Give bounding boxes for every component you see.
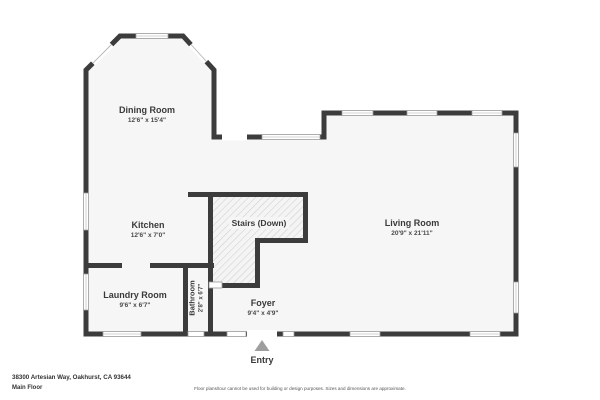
entry-label: Entry	[250, 355, 273, 365]
room-label-laundry: Laundry Room 9'6" x 6'7"	[103, 290, 167, 310]
kitchen-dims: 12'6" x 7'0"	[131, 232, 166, 240]
foyer-name: Foyer	[248, 298, 279, 309]
disclaimer-text: Floor plans/tour cannot be used for buil…	[194, 386, 406, 391]
living-room-dims: 20'9" x 21'11"	[385, 230, 440, 238]
room-label-kitchen: Kitchen 12'6" x 7'0"	[131, 220, 166, 240]
room-label-foyer: Foyer 9'4" x 4'9"	[248, 298, 279, 318]
floor-plan-page: Dining Room 12'6" x 15'4" Kitchen 12'6" …	[0, 0, 600, 400]
living-room-name: Living Room	[385, 218, 440, 229]
foyer-dims: 9'4" x 4'9"	[248, 310, 279, 318]
entry-arrow-icon	[255, 340, 270, 351]
room-label-bathroom: Bathroom 2'8" x 6'7"	[189, 280, 206, 315]
kitchen-name: Kitchen	[131, 220, 166, 231]
room-label-living: Living Room 20'9" x 21'11"	[385, 218, 440, 238]
address-text: 38300 Artesian Way, Oakhurst, CA 93644	[12, 374, 131, 381]
dining-room-dims: 12'6" x 15'4"	[119, 117, 175, 125]
bathroom-dims: 2'8" x 6'7"	[198, 280, 205, 315]
floor-name-text: Main Floor	[12, 385, 42, 391]
laundry-room-dims: 9'6" x 6'7"	[103, 302, 167, 310]
bathroom-name: Bathroom	[189, 280, 198, 315]
dining-room-name: Dining Room	[119, 105, 175, 116]
room-label-dining: Dining Room 12'6" x 15'4"	[119, 105, 175, 125]
laundry-room-name: Laundry Room	[103, 290, 167, 301]
floor-plan-canvas	[0, 0, 600, 400]
stairs-label: Stairs (Down)	[229, 217, 290, 229]
